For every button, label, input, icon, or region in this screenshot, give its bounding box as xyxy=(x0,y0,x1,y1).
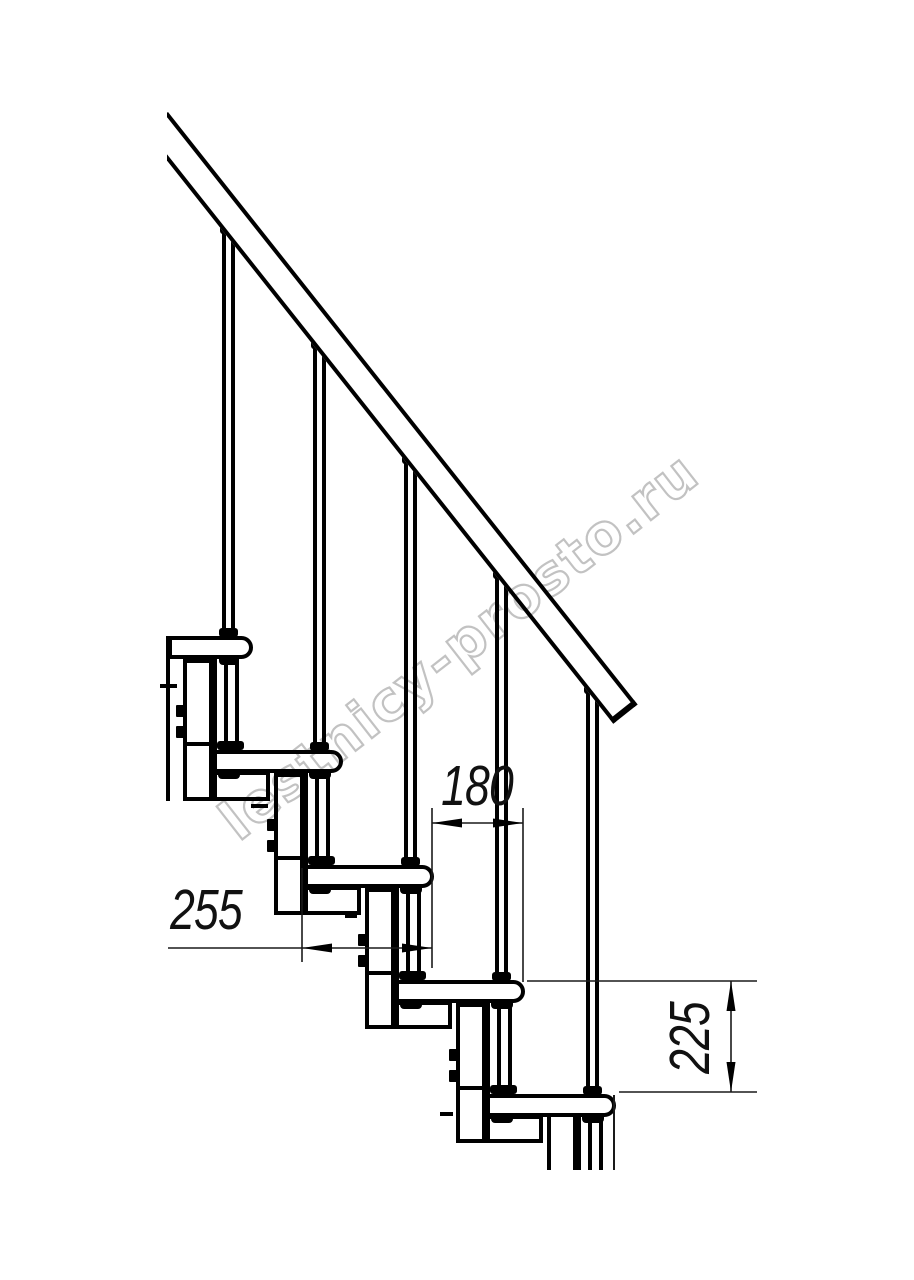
staircase-drawing-page: 180 255 225 lestnicy-prosto.ru xyxy=(0,0,914,1280)
watermark: lestnicy-prosto.ru xyxy=(0,0,914,1280)
watermark-text: lestnicy-prosto.ru xyxy=(207,440,710,853)
